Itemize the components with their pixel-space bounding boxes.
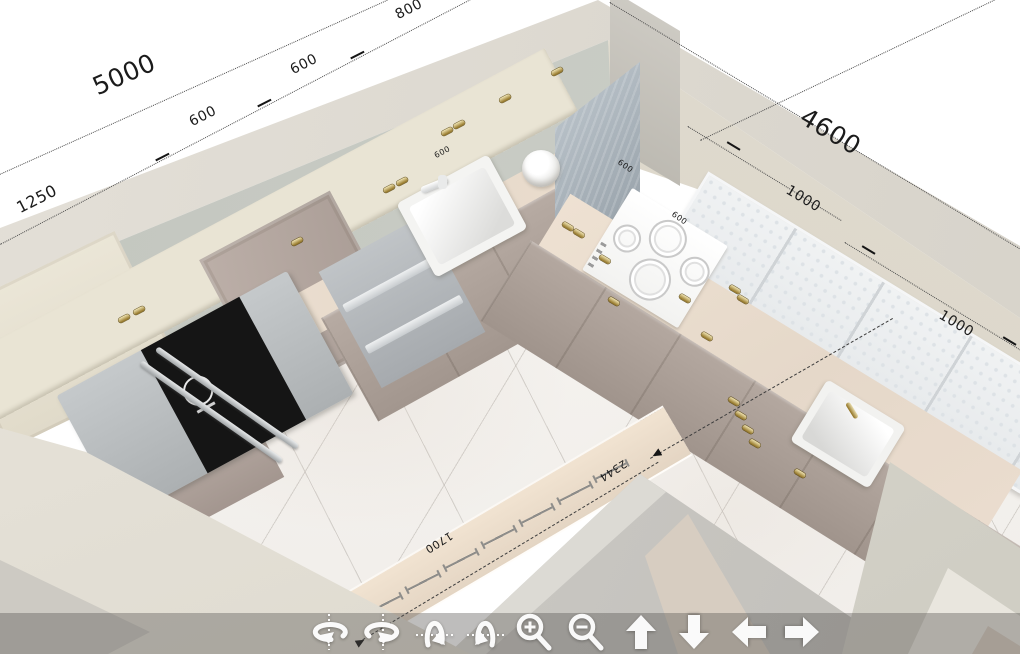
dimension-label: 600: [288, 51, 320, 78]
pan-up-button[interactable]: [618, 610, 664, 654]
pan-up-icon: [621, 612, 661, 652]
pan-down-icon: [674, 612, 714, 652]
dimension-label-left-total: 5000: [88, 48, 160, 101]
pan-down-button[interactable]: [671, 610, 717, 654]
tilt-down-button[interactable]: [462, 610, 508, 654]
view-navigation-toolbar: [0, 613, 1020, 654]
zoom-in-button[interactable]: [510, 610, 556, 654]
orbit-right-button[interactable]: [360, 610, 406, 654]
tilt-up-icon: [414, 611, 456, 653]
dishwasher-trim: [364, 295, 464, 355]
dimension-label: 600: [187, 103, 219, 130]
pan-right-icon: [782, 612, 822, 652]
orbit-left-icon: [307, 612, 351, 652]
zoom-out-icon: [565, 612, 605, 652]
tilt-down-icon: [464, 611, 506, 653]
zoom-in-icon: [513, 612, 553, 652]
dimension-label: 800: [393, 0, 425, 23]
pan-left-icon: [729, 612, 769, 652]
faucet-base: [438, 175, 447, 189]
tilt-up-button[interactable]: [412, 610, 458, 654]
pan-left-button[interactable]: [727, 609, 771, 654]
waste-bin: [522, 150, 560, 187]
zoom-out-button[interactable]: [562, 610, 608, 654]
pan-right-button[interactable]: [780, 609, 824, 654]
orbit-right-icon: [361, 612, 405, 652]
kitchen-3d-viewport[interactable]: 5000 1250 600 600 800 4600 1000 1000 600…: [0, 0, 1020, 654]
dishwasher-trim: [342, 253, 442, 313]
orbit-left-button[interactable]: [306, 610, 352, 654]
burner: [608, 219, 647, 258]
